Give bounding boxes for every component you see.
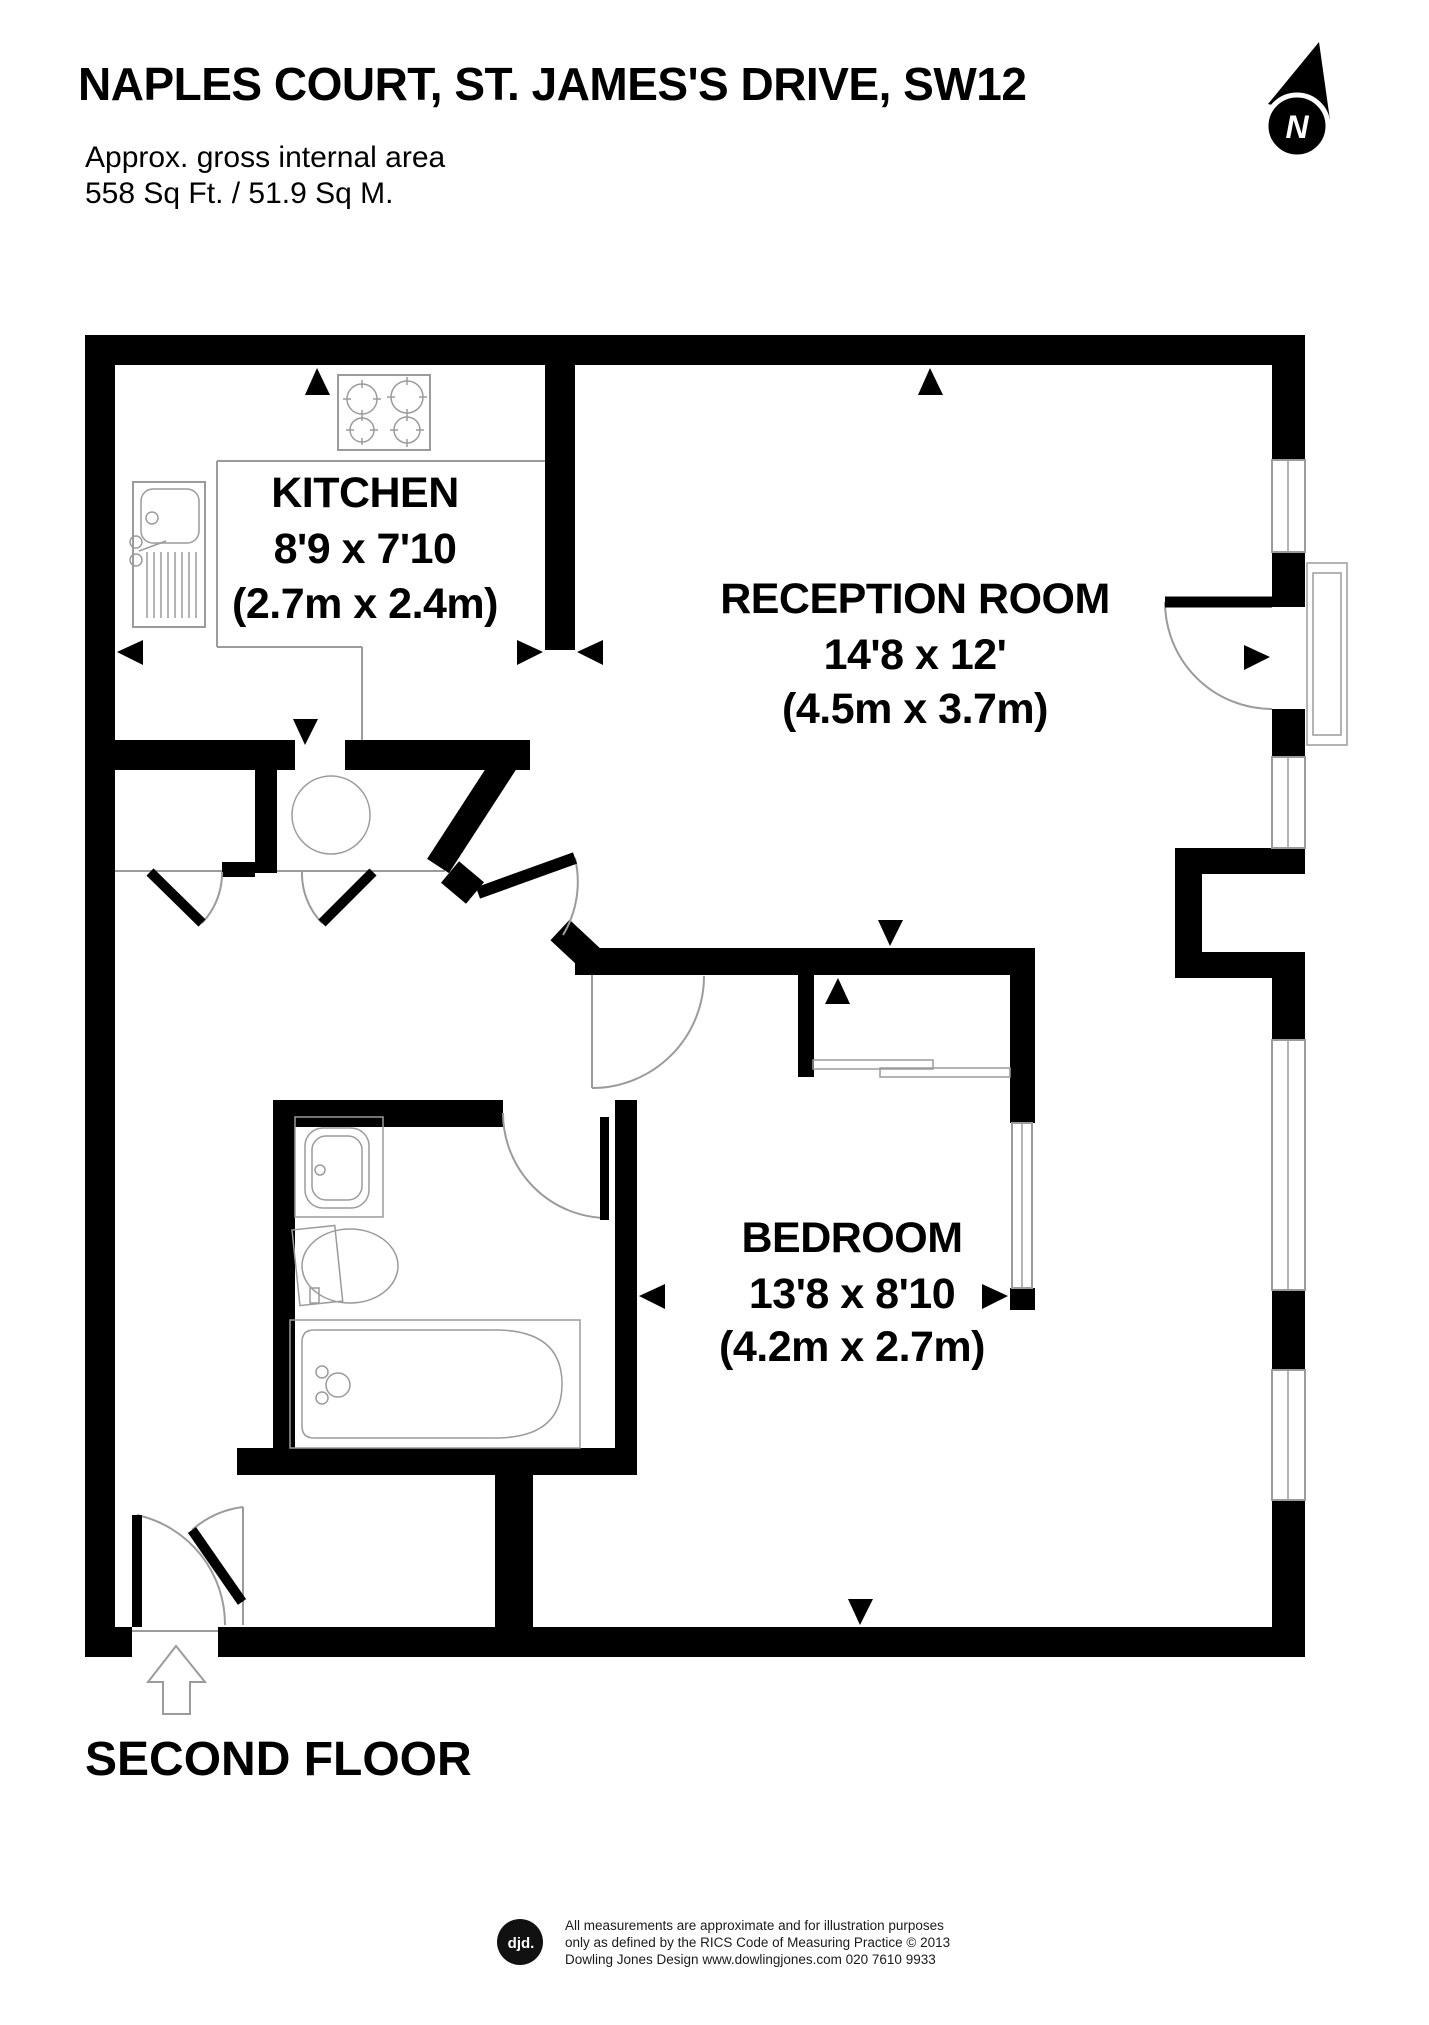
disclaimer-line-2: only as defined by the RICS Code of Meas… <box>565 1935 950 1950</box>
hob-icon <box>338 375 430 450</box>
wall-store-right <box>495 1475 533 1627</box>
arrow-kitchen-down <box>293 719 318 745</box>
wall-bathroom-top <box>273 1100 503 1127</box>
arrow-bedroom-down <box>848 1599 873 1625</box>
bedroom-recess-screen <box>1012 1123 1032 1288</box>
arrow-kitchen-right <box>517 640 543 665</box>
wall-chimney-stub <box>1010 1288 1035 1310</box>
wall-wc-left <box>255 770 277 873</box>
jamb-reception-left <box>450 872 475 893</box>
kitchen-size-metric: (2.7m x 2.4m) <box>232 580 498 628</box>
reception-label: RECEPTION ROOM 14'8 x 12' (4.5m x 3.7m) <box>720 575 1110 733</box>
wall-hall-stub <box>222 862 255 877</box>
page-title: NAPLES COURT, ST. JAMES'S DRIVE, SW12 <box>78 58 1026 110</box>
arrow-bedroom-right <box>982 1284 1008 1309</box>
balcony-rail <box>1307 563 1347 745</box>
wall-bathroom-bottom <box>237 1448 637 1475</box>
wall-right-6 <box>1272 1500 1305 1657</box>
wall-right-3 <box>1272 709 1305 757</box>
bedroom-size-metric: (4.2m x 2.7m) <box>719 1323 985 1371</box>
bedroom-label: BEDROOM 13'8 x 8'10 (4.2m x 2.7m) <box>719 1214 985 1371</box>
toilet-icon <box>292 1226 398 1306</box>
wall-closet-left <box>798 963 814 1077</box>
header: NAPLES COURT, ST. JAMES'S DRIVE, SW12 Ap… <box>78 58 1026 210</box>
bath-tub-icon <box>290 1320 580 1448</box>
bedroom-size-imperial: 13'8 x 8'10 <box>749 1270 955 1318</box>
kitchen-label: KITCHEN 8'9 x 7'10 (2.7m x 2.4m) <box>232 469 498 628</box>
arrow-reception-up <box>918 368 943 395</box>
wc-basin-icon <box>292 776 370 854</box>
disclaimer-line-3: Dowling Jones Design www.dowlingjones.co… <box>565 1952 936 1967</box>
closet-sliding-doors <box>813 1060 1010 1077</box>
footer: djd. All measurements are approximate an… <box>497 1918 950 1967</box>
kitchen-size-imperial: 8'9 x 7'10 <box>274 525 457 573</box>
kitchen-sink-icon <box>130 482 205 627</box>
bedroom-name: BEDROOM <box>741 1214 962 1262</box>
wall-bottom <box>218 1627 1305 1657</box>
notch-wall-bottom <box>1175 952 1305 978</box>
wall-top <box>85 335 1305 365</box>
arrow-bedroom-up <box>825 978 850 1004</box>
bathroom-door <box>503 1113 609 1220</box>
arrow-kitchen-left <box>117 640 143 665</box>
floor-label: SECOND FLOOR <box>85 1733 472 1786</box>
floor-plan: NAPLES COURT, ST. JAMES'S DRIVE, SW12 Ap… <box>0 0 1429 2025</box>
arrow-reception-left <box>577 640 603 665</box>
window-reception-1 <box>1272 460 1305 552</box>
reception-name: RECEPTION ROOM <box>720 575 1110 623</box>
wall-kitchen-bottom-left <box>115 740 295 770</box>
window-bedroom-2 <box>1272 1370 1305 1500</box>
window-reception-2 <box>1272 757 1305 848</box>
entry-door <box>132 1515 225 1627</box>
arrow-kitchen-up <box>305 368 330 395</box>
wall-right-5 <box>1272 1290 1305 1370</box>
wall-kitchen-divider <box>545 335 575 650</box>
wall-right-2 <box>1272 552 1305 607</box>
wall-right-4 <box>1272 978 1305 1040</box>
bedroom-door <box>592 975 704 1088</box>
arrow-bedroom-left <box>639 1284 665 1309</box>
reception-size-metric: (4.5m x 3.7m) <box>782 685 1048 733</box>
reception-size-imperial: 14'8 x 12' <box>824 631 1007 679</box>
room-labels: KITCHEN 8'9 x 7'10 (2.7m x 2.4m) RECEPTI… <box>232 469 1110 1371</box>
window-bedroom-1 <box>1272 1040 1305 1290</box>
wall-bathroom-left <box>273 1100 295 1475</box>
kitchen-name: KITCHEN <box>271 469 459 517</box>
disclaimer-line-1: All measurements are approximate and for… <box>565 1918 944 1933</box>
compass-n-label: N <box>1285 109 1309 145</box>
bathroom-sink-icon <box>295 1117 383 1217</box>
wall-bedroom-lobby <box>1010 948 1035 1123</box>
wall-bathroom-right <box>615 1100 637 1475</box>
wall-right-1 <box>1272 335 1305 460</box>
arrow-reception-down <box>878 920 903 946</box>
walls <box>85 335 1305 1657</box>
wall-bottom-left-stub <box>85 1627 132 1657</box>
hall-door-1 <box>150 872 222 923</box>
floorplan-page: NAPLES COURT, ST. JAMES'S DRIVE, SW12 Ap… <box>0 0 1429 2025</box>
subtitle: Approx. gross internal area <box>85 141 446 174</box>
area-text: 558 Sq Ft. / 51.9 Sq M. <box>85 177 394 210</box>
wall-left <box>85 335 115 1657</box>
entry-arrow-icon <box>148 1646 205 1714</box>
arrow-reception-right <box>1244 645 1270 670</box>
djd-logo-text: djd. <box>508 1935 535 1952</box>
wc-door <box>302 872 373 923</box>
reception-door <box>478 858 578 935</box>
north-arrow-icon: N <box>1266 42 1330 157</box>
